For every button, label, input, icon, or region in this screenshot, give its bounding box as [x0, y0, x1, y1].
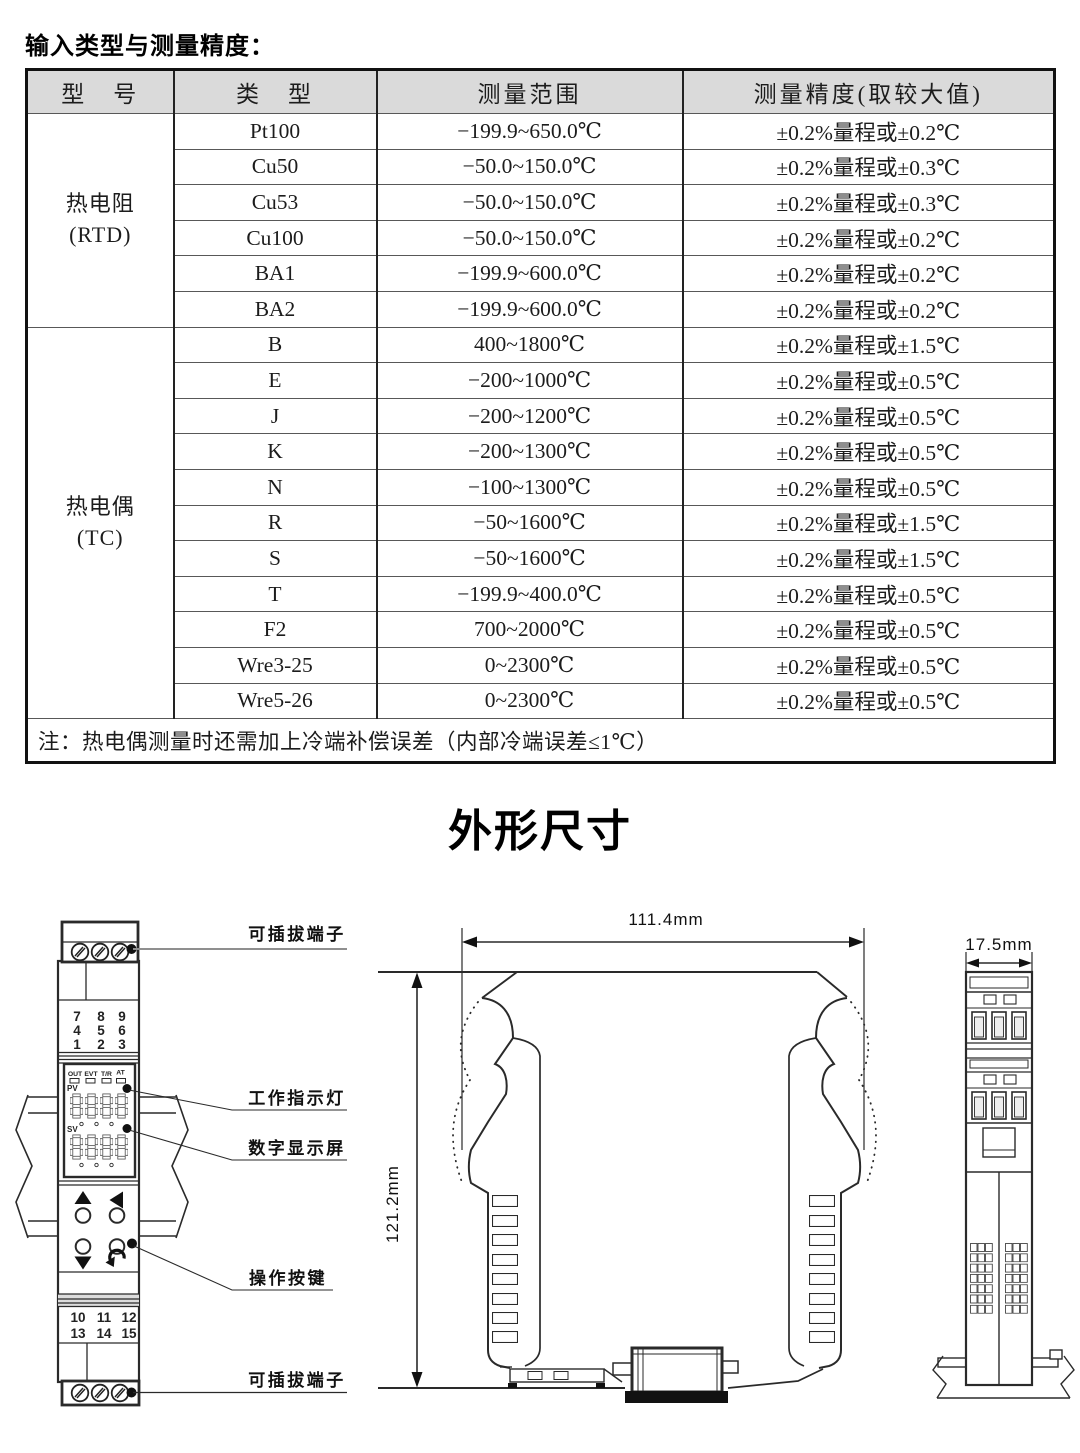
terminal-number: 8: [97, 1009, 105, 1024]
callout-dot: [123, 1124, 132, 1133]
side-view-drawing: 111.4mm 121.2mm: [378, 910, 876, 1403]
front-view-drawing: 7 8 9 4 5 6 1 2 3 OUT EVT T/R AT: [16, 922, 347, 1405]
terminal-number: 2: [97, 1037, 105, 1052]
callout-dot: [123, 1084, 132, 1093]
terminal-number: 9: [118, 1009, 126, 1024]
callout-indicator: 工作指示灯: [248, 1088, 346, 1108]
terminal-number: 15: [121, 1326, 137, 1341]
pv-label: PV: [67, 1084, 78, 1093]
bottom-terminal-block: [62, 1381, 139, 1405]
sv-label: SV: [67, 1125, 78, 1134]
status-label: AT: [116, 1070, 125, 1077]
display-panel: OUT EVT T/R AT PV SV: [64, 1064, 135, 1177]
din-clip-assembly: [378, 1348, 823, 1403]
screw-icon: [92, 944, 109, 961]
screw-icon: [112, 944, 129, 961]
dotted-clip-arcs: [453, 1002, 876, 1185]
callout-terminal-bottom: 可插拔端子: [248, 1370, 346, 1390]
status-label: OUT: [68, 1071, 83, 1078]
terminal-number: 6: [118, 1023, 126, 1038]
terminal-number: 12: [121, 1310, 136, 1325]
dimension-drawings: 7 8 9 4 5 6 1 2 3 OUT EVT T/R AT: [0, 0, 1080, 1453]
end-view-drawing: 17.5mm: [933, 935, 1074, 1398]
height-dimension: 121.2mm: [383, 973, 423, 1388]
terminal-number: 13: [70, 1326, 86, 1341]
up-button: [76, 1208, 91, 1223]
screw-icon: [72, 1385, 89, 1402]
terminal-number: 4: [73, 1023, 81, 1038]
terminal-number: 3: [118, 1037, 126, 1052]
screw-icon: [72, 944, 89, 961]
callout-buttons: 操作按键: [249, 1268, 327, 1288]
terminal-number: 1: [73, 1037, 81, 1052]
depth-dimension: 17.5mm: [965, 935, 1032, 974]
status-label: EVT: [84, 1071, 98, 1078]
top-terminal-block: [62, 922, 138, 962]
screw-icon: [92, 1385, 109, 1402]
callouts: 可插拔端子 工作指示灯 数字显示屏 操作按键 可插拔端子: [129, 924, 347, 1393]
terminal-number: 10: [70, 1310, 85, 1325]
screw-icon: [112, 1385, 129, 1402]
terminal-number: 11: [97, 1310, 112, 1325]
terminal-number: 14: [96, 1326, 112, 1341]
terminal-number-grid-bottom: 10 11 12 13 14 15: [70, 1310, 137, 1341]
datasheet-page: 输入类型与测量精度： 型 号 类 型 测量范围 测量精度(取较大值) 热电阻 (…: [0, 0, 1080, 1453]
terminal-number: 7: [73, 1009, 81, 1024]
callout-terminal-top: 可插拔端子: [248, 924, 346, 944]
callout-display: 数字显示屏: [248, 1138, 346, 1158]
vent-slots: [493, 1196, 835, 1343]
status-label: T/R: [101, 1071, 112, 1078]
depth-dim-label: 17.5mm: [965, 935, 1032, 954]
terminal-number: 5: [97, 1023, 105, 1038]
down-button: [76, 1239, 91, 1254]
width-dimension: 111.4mm: [462, 910, 864, 1150]
shift-button: [110, 1208, 125, 1223]
width-dim-label: 111.4mm: [628, 910, 703, 929]
height-dim-label: 121.2mm: [383, 1165, 402, 1243]
